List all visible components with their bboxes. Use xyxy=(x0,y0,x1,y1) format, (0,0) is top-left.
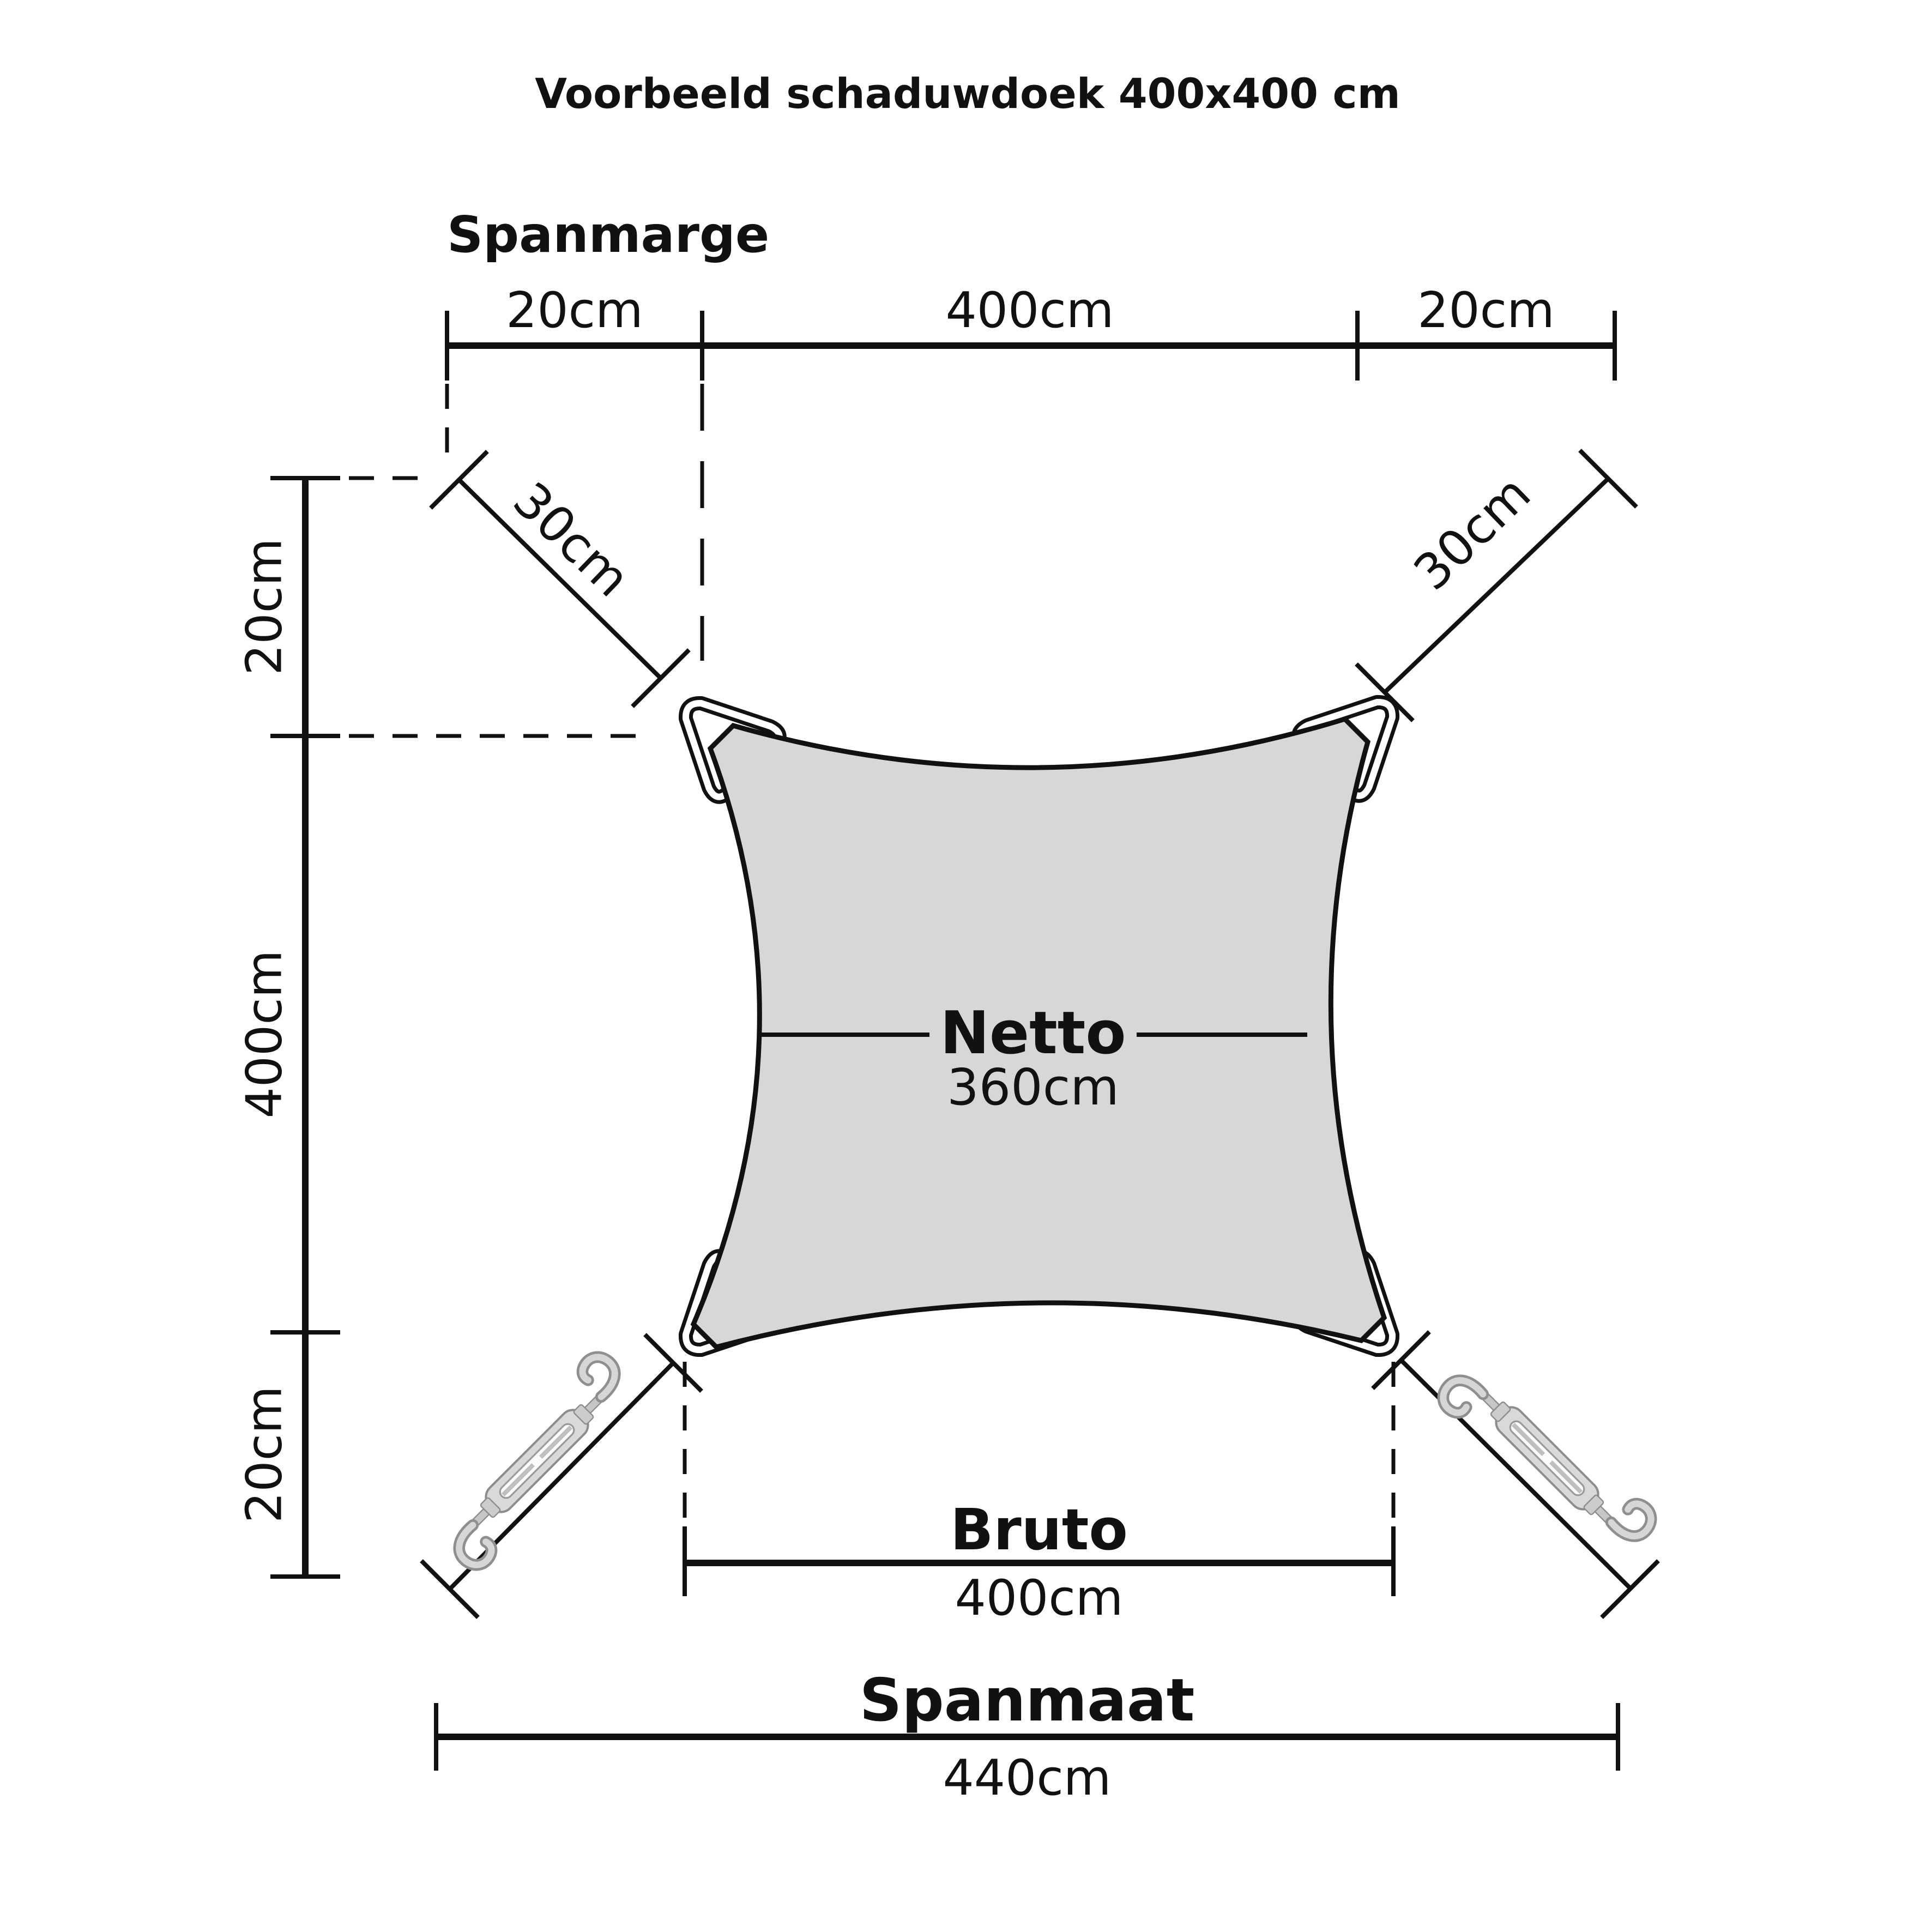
dimension-line-spanmaat: Spanmaat 440cm xyxy=(436,1667,1618,1807)
netto-label: Netto xyxy=(940,999,1126,1067)
anchor-line-bottom-right xyxy=(1373,1332,1658,1617)
spanmaat-value: 440cm xyxy=(943,1749,1112,1807)
anchor-line-bottom-left xyxy=(421,1335,702,1617)
left-dim-label-top: 20cm xyxy=(236,538,293,675)
left-dim-label-bottom: 20cm xyxy=(236,1386,293,1523)
bruto-value: 400cm xyxy=(955,1569,1124,1627)
spanmaat-label: Spanmaat xyxy=(860,1667,1195,1735)
netto-value: 360cm xyxy=(947,1058,1119,1116)
turnbuckle-icon-right xyxy=(1436,1348,1657,1568)
shade-sail-dimension-diagram: Voorbeeld schaduwdoek 400x400 cm Spanmar… xyxy=(0,0,1932,1932)
left-dim-label-middle: 400cm xyxy=(236,950,293,1119)
dimension-line-left: 20cm 400cm 20cm xyxy=(236,478,341,1577)
top-dim-label-right: 20cm xyxy=(1417,282,1555,339)
dimension-line-top: 20cm 400cm 20cm xyxy=(447,282,1615,381)
corner-offset-label-top-right: 30cm xyxy=(1403,465,1542,601)
diagram-canvas: Voorbeeld schaduwdoek 400x400 cm Spanmar… xyxy=(0,0,1932,1932)
spanmarge-heading: Spanmarge xyxy=(447,206,769,264)
turnbuckle-icon-left xyxy=(426,1350,647,1571)
dimension-line-bruto: Bruto 400cm xyxy=(685,1496,1393,1627)
page-title: Voorbeeld schaduwdoek 400x400 cm xyxy=(535,69,1400,118)
corner-offset-top-right: 30cm xyxy=(1356,450,1637,721)
bruto-label: Bruto xyxy=(950,1496,1128,1563)
top-dim-label-left: 20cm xyxy=(506,282,643,339)
corner-offset-top-left: 30cm xyxy=(431,451,689,707)
top-dim-label-middle: 400cm xyxy=(946,282,1114,339)
